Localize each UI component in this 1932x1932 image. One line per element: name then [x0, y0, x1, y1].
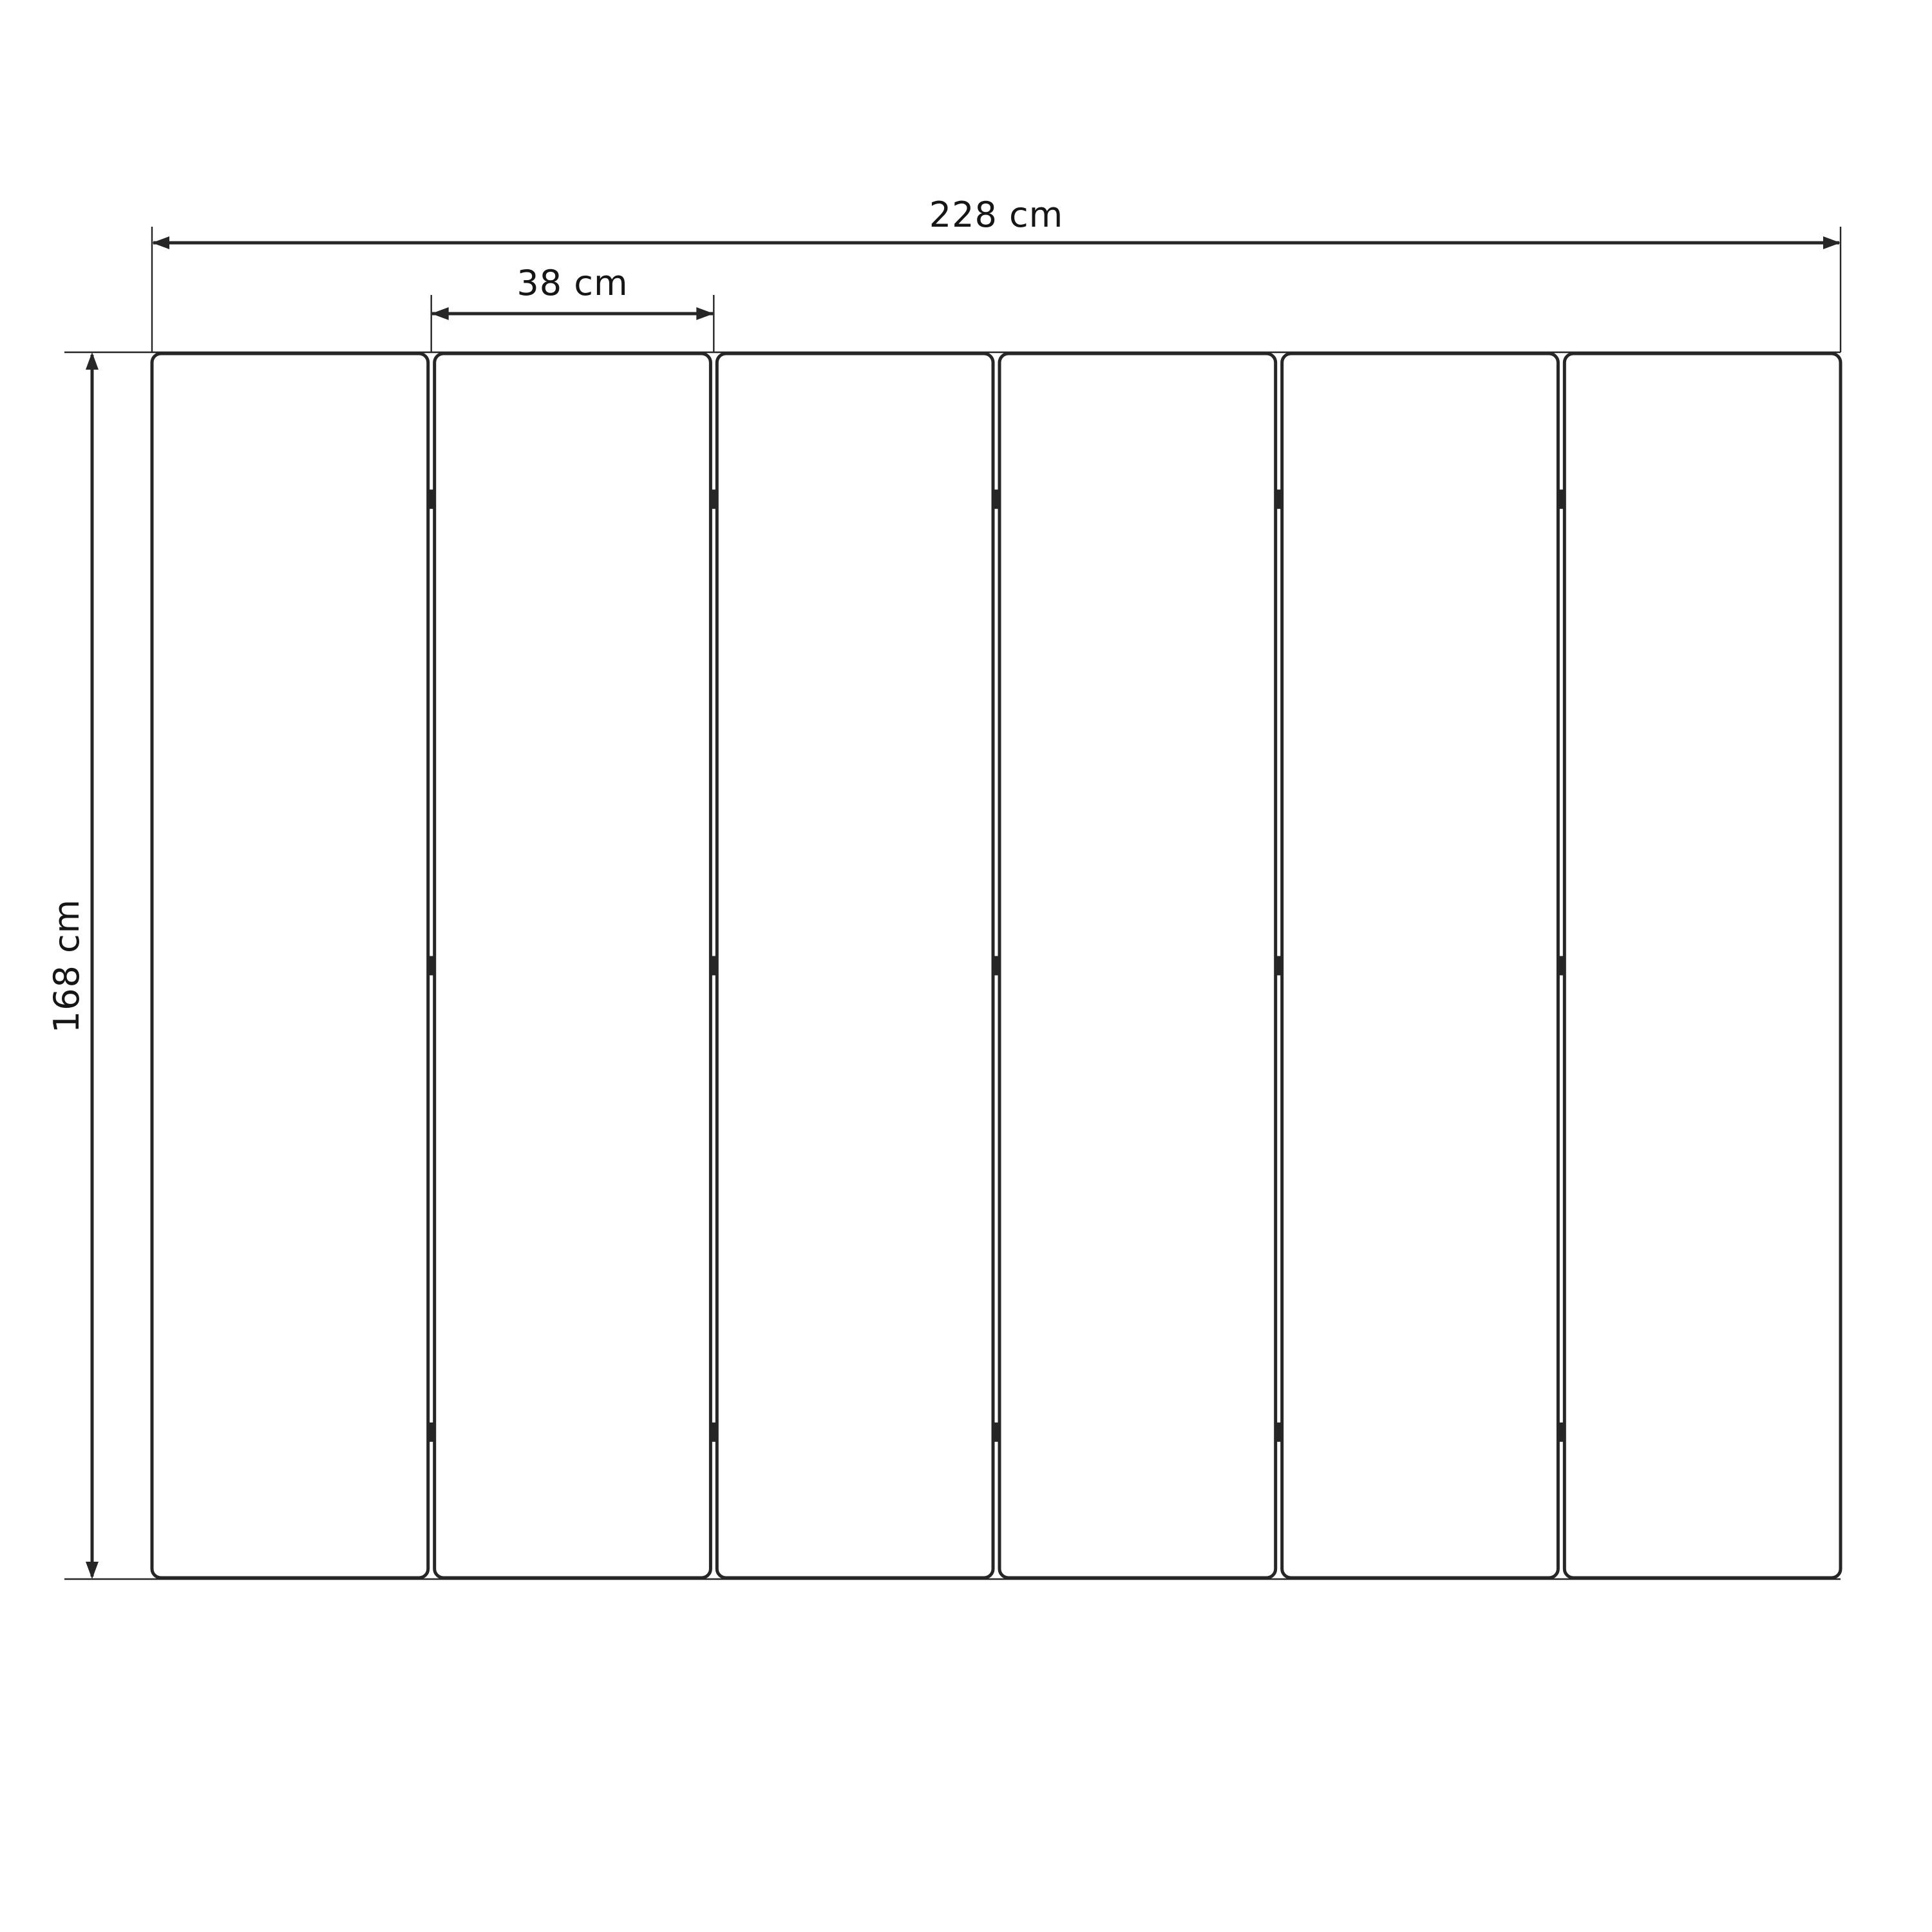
total-width-label: 228 cm	[929, 194, 1064, 235]
arrowhead-left-icon	[431, 307, 449, 320]
panel-3	[717, 354, 993, 1578]
arrowhead-right-icon	[1823, 236, 1841, 249]
dimension-panel-width: 38 cm	[431, 263, 714, 352]
folding-screen-dimension-diagram: 228 cm 38 cm 168 cm	[0, 0, 1932, 1932]
hinge-mark-seam3-1	[992, 489, 1001, 509]
hinge-mark-seam4-2	[1274, 956, 1283, 976]
arrowhead-left-icon	[152, 236, 169, 249]
panel-5	[1282, 354, 1558, 1578]
hinge-mark-seam2-3	[710, 1423, 718, 1442]
panel-2	[435, 354, 711, 1578]
panel-4	[999, 354, 1276, 1578]
hinge-mark-seam5-3	[1557, 1423, 1566, 1442]
height-label: 168 cm	[46, 899, 87, 1034]
panel-width-label: 38 cm	[516, 263, 628, 303]
hinge-mark-seam2-2	[710, 956, 718, 976]
arrowhead-down-icon	[86, 1562, 99, 1579]
drawing-canvas: 228 cm 38 cm 168 cm	[0, 0, 1932, 1932]
hinge-mark-seam4-3	[1274, 1423, 1283, 1442]
hinge-mark-seam4-1	[1274, 489, 1283, 509]
hinge-mark-seam5-1	[1557, 489, 1566, 509]
arrowhead-up-icon	[86, 352, 99, 370]
hinge-mark-seam1-2	[427, 956, 435, 976]
hinge-mark-seam1-1	[427, 489, 435, 509]
hinge-mark-seam3-2	[992, 956, 1001, 976]
hinge-mark-seam3-3	[992, 1423, 1001, 1442]
arrowhead-right-icon	[696, 307, 714, 320]
dimension-height: 168 cm	[46, 352, 99, 1579]
panel-6	[1564, 354, 1841, 1578]
hinge-mark-seam5-2	[1557, 956, 1566, 976]
panel-1	[152, 354, 428, 1578]
hinge-mark-seam2-1	[710, 489, 718, 509]
dimension-total-width: 228 cm	[152, 194, 1841, 352]
hinge-mark-seam1-3	[427, 1423, 435, 1442]
